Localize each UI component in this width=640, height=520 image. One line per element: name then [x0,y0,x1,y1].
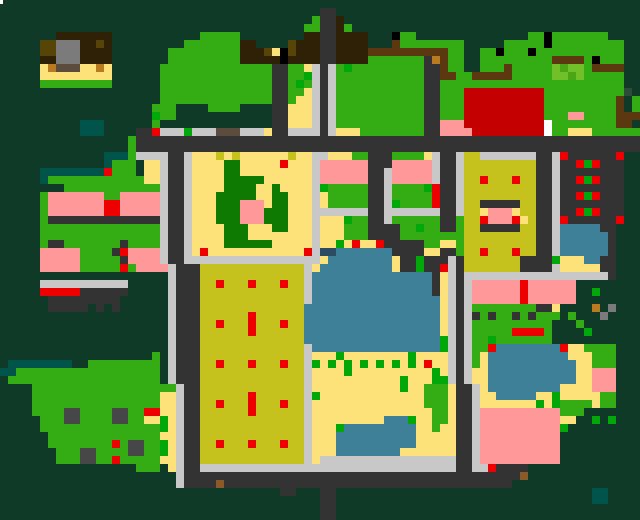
town-map-canvas[interactable] [0,0,640,520]
town-map [0,0,640,520]
